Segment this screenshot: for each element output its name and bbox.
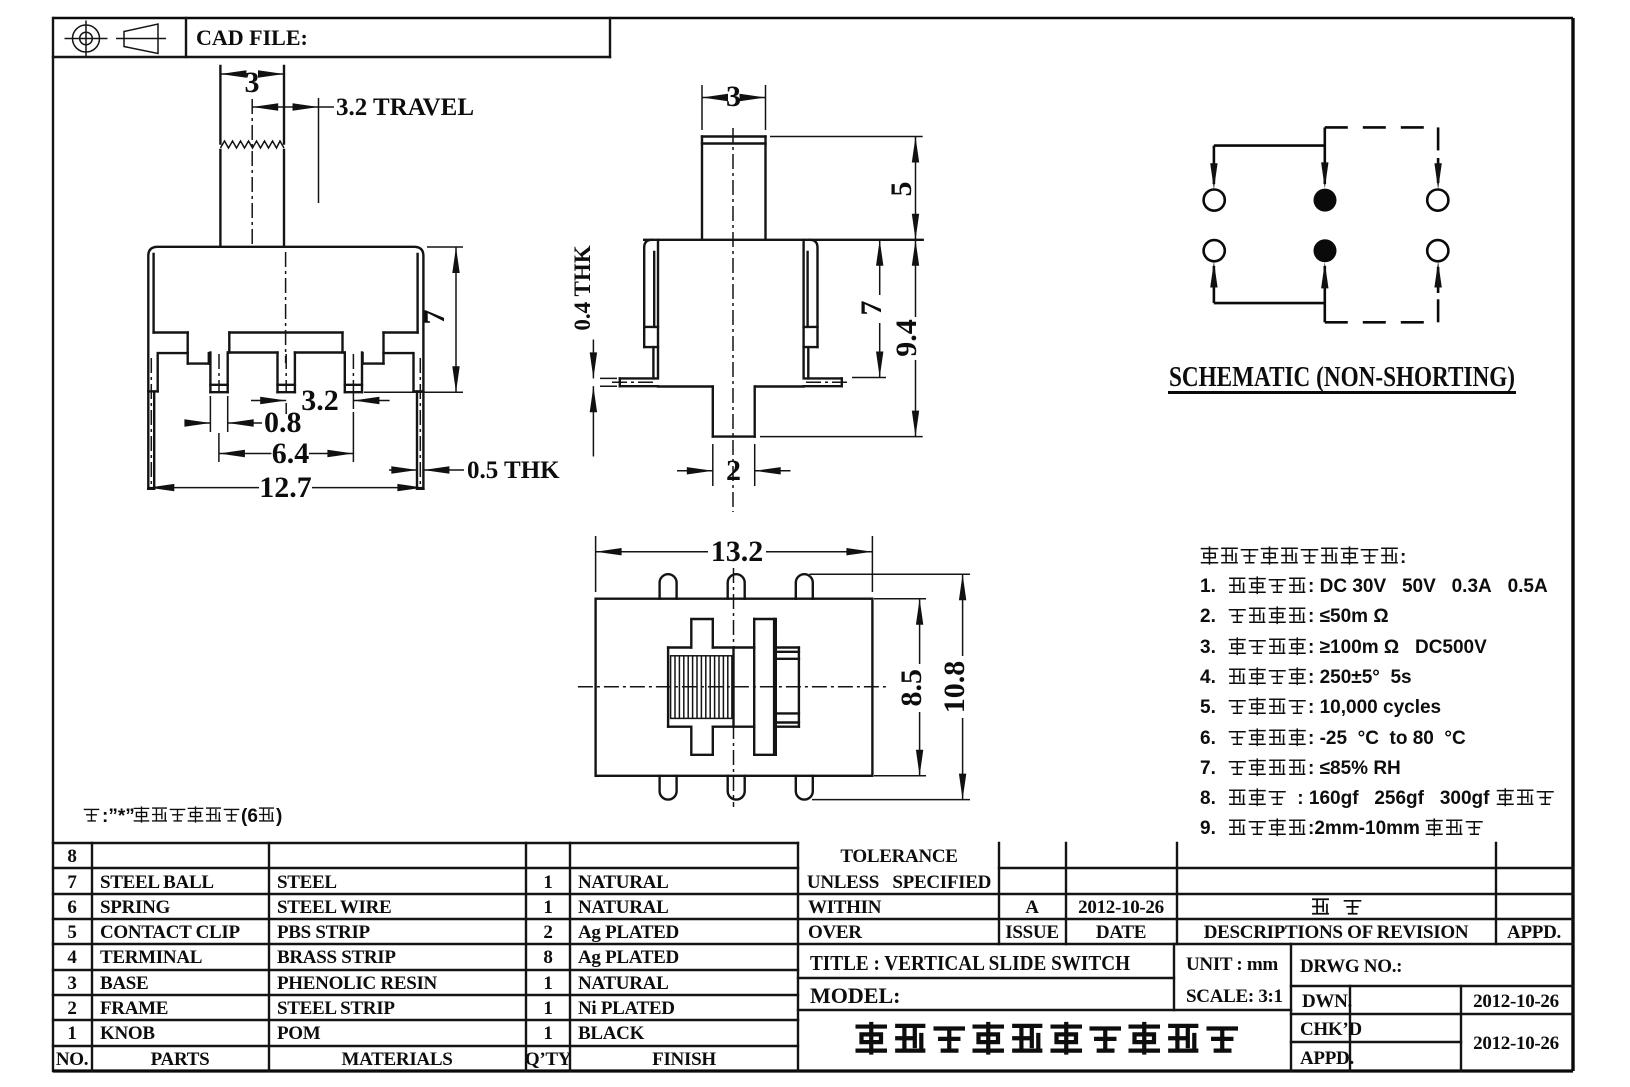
svg-text:1: 1: [543, 973, 552, 994]
svg-text:STEEL WIRE: STEEL WIRE: [277, 897, 391, 918]
svg-text:6.4: 6.4: [272, 437, 310, 470]
svg-text:1: 1: [543, 1023, 552, 1044]
svg-text:SCALE: 3:1: SCALE: 3:1: [1186, 986, 1283, 1007]
svg-text:MATERIALS: MATERIALS: [342, 1049, 453, 1070]
svg-text::: :: [1400, 547, 1406, 568]
svg-text:1: 1: [543, 998, 552, 1019]
svg-text:9.4: 9.4: [890, 319, 923, 357]
svg-text:: ≤85% RH: : ≤85% RH: [1308, 758, 1401, 779]
svg-text:0.5 THK: 0.5 THK: [467, 457, 560, 484]
svg-text:TERMINAL: TERMINAL: [100, 947, 202, 968]
svg-text:2: 2: [67, 998, 76, 1019]
svg-text:Ni PLATED: Ni PLATED: [578, 998, 675, 1019]
svg-text:: 160gf 256gf 300gf: : 160gf 256gf 300gf: [1292, 788, 1490, 809]
svg-text:ISSUE: ISSUE: [1005, 922, 1058, 943]
svg-text:APPD.: APPD.: [1507, 922, 1561, 943]
svg-text:NATURAL: NATURAL: [578, 973, 668, 994]
svg-text:13.2: 13.2: [711, 535, 764, 568]
svg-text:4: 4: [67, 947, 77, 968]
svg-text:DESCRIPTIONS OF REVISION: DESCRIPTIONS OF REVISION: [1204, 922, 1469, 943]
svg-text:CONTACT CLIP: CONTACT CLIP: [100, 922, 240, 943]
svg-text:NATURAL: NATURAL: [578, 872, 668, 893]
svg-text:STEEL BALL: STEEL BALL: [100, 872, 214, 893]
svg-text:: 10,000 cycles: : 10,000 cycles: [1308, 697, 1441, 718]
svg-text::2mm-10mm: :2mm-10mm: [1308, 818, 1420, 839]
svg-text:5: 5: [67, 922, 76, 943]
svg-text:DWN.: DWN.: [1302, 991, 1352, 1012]
svg-text:Q’TY: Q’TY: [525, 1049, 572, 1070]
svg-text:NATURAL: NATURAL: [578, 897, 668, 918]
svg-text:STEEL STRIP: STEEL STRIP: [277, 998, 395, 1019]
svg-text:3.2 TRAVEL: 3.2 TRAVEL: [336, 94, 474, 121]
svg-text:Ag PLATED: Ag PLATED: [578, 947, 679, 968]
svg-text:SPRING: SPRING: [100, 897, 171, 918]
svg-text:5: 5: [885, 182, 918, 197]
svg-text:3: 3: [726, 80, 741, 113]
svg-text:CAD FILE:: CAD FILE:: [196, 25, 308, 50]
svg-text:7.: 7.: [1200, 758, 1216, 779]
svg-text:FINISH: FINISH: [652, 1049, 716, 1070]
svg-text:7: 7: [418, 310, 451, 325]
svg-text:WITHIN: WITHIN: [808, 897, 882, 918]
svg-text:: 250±5° 5s: : 250±5° 5s: [1308, 667, 1412, 688]
svg-text:4.: 4.: [1200, 667, 1216, 688]
svg-text:TITLE : VERTICAL SLIDE SW: TITLE : VERTICAL SLIDE SWITCH: [810, 951, 1130, 975]
svg-text:PHENOLIC RESIN: PHENOLIC RESIN: [277, 973, 438, 994]
svg-text:BLACK: BLACK: [578, 1023, 645, 1044]
svg-text:0.8: 0.8: [264, 406, 302, 439]
svg-text:APPD.: APPD.: [1300, 1048, 1354, 1069]
svg-text:: ≤50m Ω: : ≤50m Ω: [1308, 606, 1389, 627]
svg-text:OVER: OVER: [808, 922, 862, 943]
svg-text:PARTS: PARTS: [151, 1049, 210, 1070]
svg-text:): ): [276, 806, 282, 827]
svg-text:DRWG NO.:: DRWG NO.:: [1300, 956, 1402, 977]
svg-text:KNOB: KNOB: [100, 1023, 155, 1044]
svg-text:12.7: 12.7: [259, 471, 312, 504]
svg-text:8: 8: [543, 947, 552, 968]
svg-text:POM: POM: [277, 1023, 321, 1044]
svg-text:5.: 5.: [1200, 697, 1216, 718]
svg-text::”*”: :”*”: [102, 806, 135, 827]
svg-text:STEEL: STEEL: [277, 872, 337, 893]
svg-text:2: 2: [726, 454, 741, 487]
svg-text:BASE: BASE: [100, 973, 148, 994]
svg-text:8.5: 8.5: [895, 669, 928, 707]
svg-text:0.4 THK: 0.4 THK: [570, 245, 595, 330]
svg-text:9.: 9.: [1200, 818, 1216, 839]
svg-text:CHK’D: CHK’D: [1300, 1019, 1362, 1040]
svg-text:SCHEMATIC (NON-SHORTING): SCHEMATIC (NON-SHORTING): [1169, 361, 1515, 393]
svg-text:3.: 3.: [1200, 637, 1216, 658]
svg-text:: -25 °C to 80 °C: : -25 °C to 80 °C: [1308, 728, 1466, 749]
svg-text:Ag PLATED: Ag PLATED: [578, 922, 679, 943]
svg-text:2012-10-26: 2012-10-26: [1078, 897, 1164, 918]
svg-text:6.: 6.: [1200, 728, 1216, 749]
svg-text:A: A: [1025, 897, 1039, 918]
svg-text:3: 3: [67, 973, 76, 994]
svg-text:3.2: 3.2: [301, 384, 339, 417]
svg-text:FRAME: FRAME: [100, 998, 168, 1019]
svg-text:8: 8: [67, 846, 76, 867]
svg-text:7: 7: [67, 872, 77, 893]
svg-text:DATE: DATE: [1096, 922, 1146, 943]
svg-text:2.: 2.: [1200, 606, 1216, 627]
svg-text:1: 1: [543, 897, 552, 918]
svg-text:MODEL:: MODEL:: [810, 983, 900, 1008]
svg-text:1: 1: [67, 1023, 76, 1044]
svg-text:(6: (6: [241, 806, 258, 827]
svg-text:2: 2: [543, 922, 552, 943]
svg-text:6: 6: [67, 897, 76, 918]
svg-text:: ≥100m Ω DC500V: : ≥100m Ω DC500V: [1308, 637, 1487, 658]
svg-text:UNLESS SPECIFIED: UNLESS SPECIFIED: [807, 872, 991, 893]
svg-text:1: 1: [543, 872, 552, 893]
svg-text:NO.: NO.: [56, 1049, 88, 1070]
svg-text:8.: 8.: [1200, 788, 1216, 809]
svg-text:3: 3: [245, 66, 260, 99]
svg-text:2012-10-26: 2012-10-26: [1473, 991, 1559, 1012]
svg-text:: DC 30V 50V 0.3A 0.5A: : DC 30V 50V 0.3A 0.5A: [1308, 576, 1548, 597]
svg-text:1.: 1.: [1200, 576, 1216, 597]
svg-text:UNIT : mm: UNIT : mm: [1186, 954, 1278, 975]
svg-text:10.8: 10.8: [938, 661, 971, 714]
svg-text:7: 7: [855, 301, 888, 316]
svg-text:PBS STRIP: PBS STRIP: [277, 922, 371, 943]
svg-text:TOLERANCE: TOLERANCE: [840, 846, 957, 867]
svg-text:BRASS STRIP: BRASS STRIP: [277, 947, 396, 968]
svg-text:2012-10-26: 2012-10-26: [1473, 1033, 1559, 1054]
